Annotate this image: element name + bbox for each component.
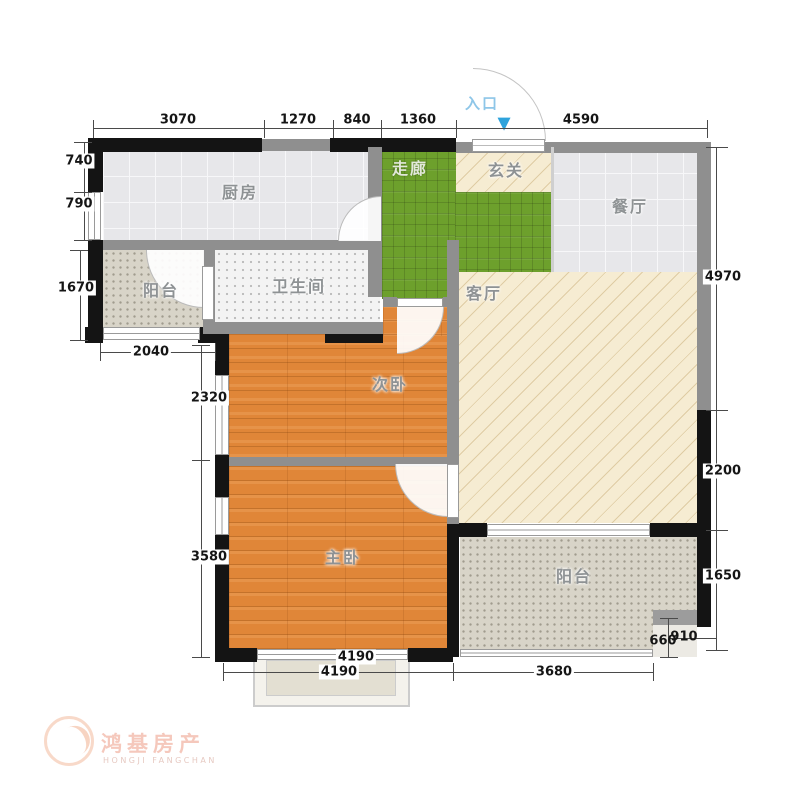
dim-label-4190-window: 4190: [336, 650, 376, 665]
dim-label-790: 790: [63, 197, 94, 212]
dim-tick: [333, 120, 334, 138]
dim-label-4970: 4970: [703, 270, 743, 285]
dim-tick: [93, 120, 94, 138]
dim-line: [93, 128, 707, 129]
bedroom-second-window: [215, 375, 229, 455]
dim-tick: [192, 657, 210, 658]
bedroom-master-door-panel: [447, 464, 459, 518]
wall: [215, 648, 257, 662]
wall: [383, 297, 397, 307]
wall: [103, 240, 382, 250]
dim-tick: [660, 657, 678, 658]
dim-label-3680: 3680: [534, 665, 574, 680]
watermark-logo-swoosh: [54, 720, 95, 761]
room-label-bedroom-master: 主卧: [325, 544, 361, 568]
dim-label-4590: 4590: [561, 113, 601, 128]
wall: [697, 410, 711, 627]
dim-tick: [653, 663, 654, 681]
dim-tick: [74, 192, 92, 193]
dim-label-2320: 2320: [189, 391, 229, 406]
dim-label-910: 910: [668, 630, 699, 645]
balcony-left-window: [103, 327, 200, 340]
dim-label-2200: 2200: [703, 464, 743, 479]
wall: [215, 343, 229, 375]
bay-window: [257, 649, 408, 660]
floor-plan: 入口 ▼ 厨房 走廊 玄关 餐厅 阳台 卫生间 客厅 次卧 主卧 阳台 3070…: [0, 0, 800, 800]
dim-tick: [70, 250, 88, 251]
dim-tick: [706, 410, 728, 411]
bedroom-second-door-panel: [397, 298, 443, 307]
watermark-subtitle: HONGJI FANGCHAN: [103, 756, 217, 765]
dim-tick: [453, 663, 454, 681]
dim-tick: [192, 345, 210, 346]
wall: [203, 322, 383, 334]
dim-label-4190: 4190: [319, 665, 359, 680]
wall: [551, 147, 554, 272]
bedroom-second-floor: [229, 334, 447, 457]
dim-tick: [381, 120, 382, 138]
dim-tick: [660, 618, 678, 619]
watermark: 鸿基房产 HONGJI FANGCHAN: [44, 712, 284, 772]
wall: [90, 138, 262, 152]
bathroom-door-panel: [202, 266, 214, 320]
dim-tick: [70, 340, 88, 341]
entrance-door-panel: [472, 139, 545, 152]
wall: [447, 240, 459, 465]
wall: [447, 518, 459, 524]
dim-tick: [707, 120, 708, 138]
dim-line: [223, 672, 653, 673]
wall: [330, 138, 456, 152]
dim-label-840: 840: [341, 113, 372, 128]
balcony-south-sill: [460, 649, 653, 657]
dim-tick: [74, 240, 92, 241]
dim-label-3580: 3580: [189, 550, 229, 565]
wall: [262, 139, 330, 151]
living-floor: [458, 272, 697, 523]
living-balcony-window: [487, 524, 650, 536]
watermark-name: 鸿基房产: [101, 728, 205, 758]
wall: [650, 523, 697, 537]
room-label-living: 客厅: [466, 280, 502, 304]
dim-label-3070: 3070: [158, 113, 198, 128]
bedroom-master-window: [215, 497, 229, 535]
dim-tick: [192, 460, 210, 461]
dim-label-740: 740: [63, 154, 94, 169]
dim-tick: [706, 147, 728, 148]
dim-label-1670: 1670: [56, 281, 96, 296]
corridor-floor-east: [455, 192, 553, 272]
watermark-logo-icon: [44, 716, 94, 766]
dim-tick: [264, 120, 265, 138]
room-label-balcony-left: 阳台: [143, 277, 179, 301]
room-label-bedroom-second: 次卧: [372, 371, 408, 395]
dim-tick: [706, 530, 728, 531]
room-label-corridor: 走廊: [392, 155, 428, 179]
room-label-dining: 餐厅: [612, 193, 648, 217]
room-label-foyer: 玄关: [488, 157, 524, 181]
dim-label-1360: 1360: [398, 113, 438, 128]
dim-tick: [215, 343, 216, 361]
dim-label-1270: 1270: [278, 113, 318, 128]
dim-tick: [456, 120, 457, 138]
dim-tick: [74, 142, 92, 143]
room-label-kitchen: 厨房: [222, 179, 258, 203]
dim-label-2040: 2040: [131, 345, 171, 360]
dim-tick: [100, 343, 101, 361]
wall: [447, 523, 459, 657]
wall: [215, 455, 229, 497]
room-label-bathroom: 卫生间: [272, 273, 326, 297]
dim-label-1650: 1650: [703, 569, 743, 584]
entrance-label: 入口: [465, 93, 499, 114]
dim-tick: [706, 650, 728, 651]
entrance-arrow-icon: ▼: [497, 116, 510, 133]
room-label-balcony-south: 阳台: [556, 563, 592, 587]
dim-tick: [223, 663, 224, 681]
